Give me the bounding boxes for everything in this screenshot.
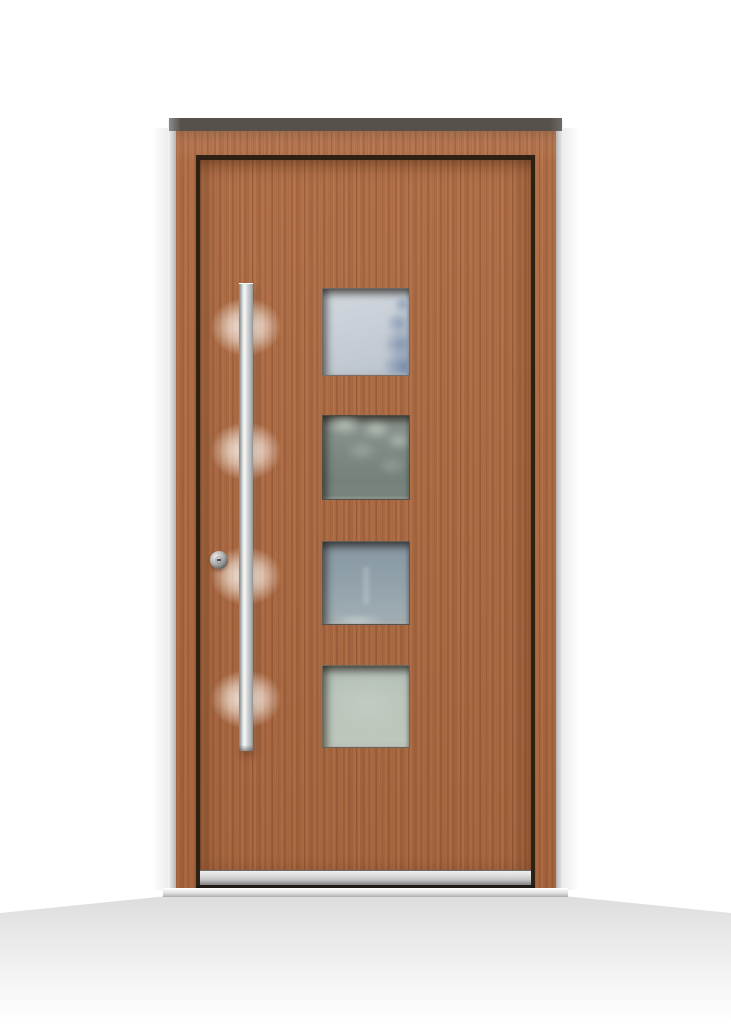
frame-edge-right	[556, 121, 563, 888]
pull-handle-bar	[239, 283, 253, 751]
glass-pane-4	[322, 665, 410, 748]
glass-pane-2	[322, 415, 410, 500]
glass-pane-1	[322, 288, 410, 376]
glass-pane-3	[322, 541, 410, 625]
glass-reflection-streak	[323, 542, 409, 624]
glass-reflection-foliage	[323, 416, 409, 499]
frame-top-rail	[169, 118, 562, 131]
product-photo-canvas	[0, 0, 731, 1024]
frame-edge-left	[168, 121, 176, 888]
ambient-shadow-right	[563, 128, 579, 890]
floor-surface	[0, 893, 731, 1024]
entrance-door	[168, 115, 563, 896]
lock-cylinder	[210, 551, 228, 569]
glass-reflection-soft	[323, 666, 409, 747]
ambient-shadow-left	[152, 128, 168, 890]
threshold-sill	[163, 888, 568, 897]
glass-reflection-tree	[356, 289, 409, 375]
leaf-weather-bar	[200, 870, 531, 886]
